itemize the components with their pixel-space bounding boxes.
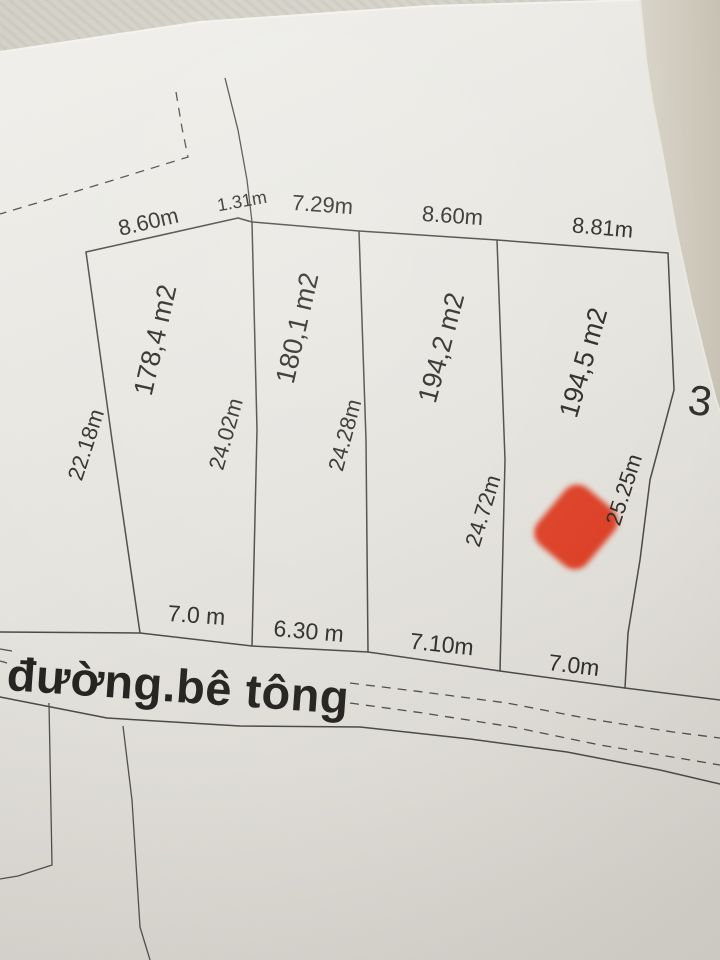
top-dimension-label-3: 7.29m <box>291 190 354 219</box>
paper-sheet <box>0 0 720 960</box>
top-dimension-label-5: 8.81m <box>571 212 634 242</box>
bottom-dimension-label-1: 7.0 m <box>167 600 226 630</box>
land-survey-photo: 8.60m 1.31m 7.29m 8.60m 8.81m 178,4 m2 1… <box>0 0 720 960</box>
plot-sketch-svg: 8.60m 1.31m 7.29m 8.60m 8.81m 178,4 m2 1… <box>0 0 720 960</box>
top-dimension-label-4: 8.60m <box>421 201 484 230</box>
